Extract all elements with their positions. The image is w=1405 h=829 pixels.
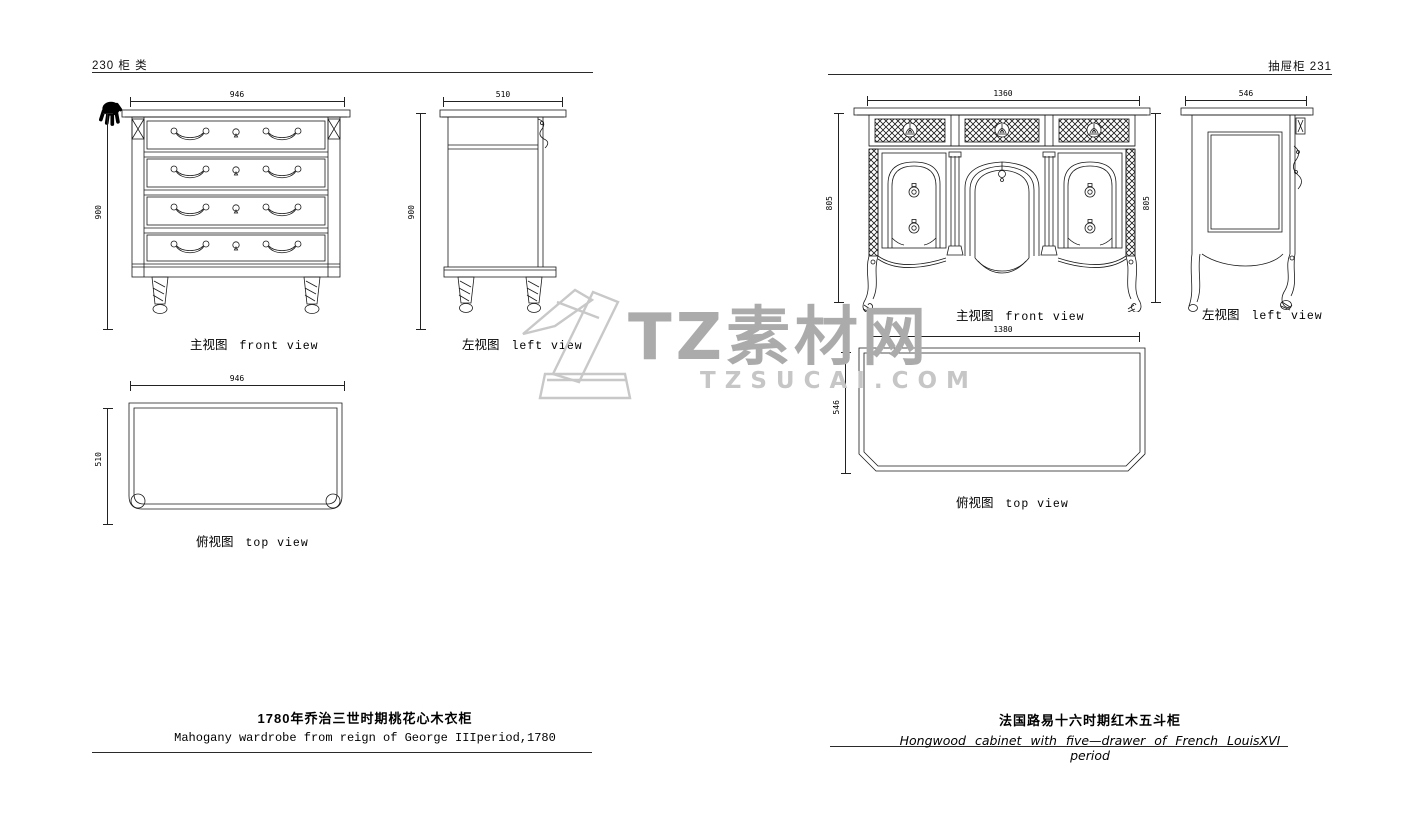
dim-value: 546: [832, 400, 841, 414]
footer-rule-left: [92, 752, 592, 753]
view-label-en: top view: [246, 537, 309, 550]
view-label-en: front view: [1006, 311, 1085, 324]
view-label-cn: 左视图: [462, 334, 500, 353]
right-caption: 法国路易十六时期红木五斗柜 Hongwood cabinet with five…: [880, 710, 1300, 763]
page-number-right: 抽屉柜 231: [1160, 58, 1332, 74]
dim-value: 510: [485, 90, 521, 99]
book-page-scan: 230 柜 类 抽屉柜 231 946 900: [0, 0, 1405, 829]
dim-value: 510: [94, 452, 103, 466]
dim-value: 900: [94, 205, 103, 219]
dim-line: [1155, 113, 1156, 303]
dim-line: [130, 101, 345, 102]
cabinet-front-view-drawing: [853, 106, 1151, 312]
view-label-en: front view: [240, 340, 319, 353]
dim-line: [443, 101, 563, 102]
dim-value: 946: [222, 374, 252, 383]
dim-line: [867, 100, 1140, 101]
dim-value: 546: [1228, 89, 1264, 98]
chest-front-view-label: 主视图 front view: [190, 334, 319, 353]
header-rule-right: [828, 74, 1332, 75]
dim-line: [1185, 100, 1307, 101]
dim-line: [838, 113, 839, 303]
chest-top-view-drawing: [123, 398, 348, 528]
view-label-cn: 左视图: [1202, 304, 1240, 323]
dim-value: 946: [222, 90, 252, 99]
dim-line: [107, 113, 108, 330]
cabinet-top-view-label: 俯视图 top view: [956, 492, 1069, 511]
caption-chinese: 1780年乔治三世时期桃花心木衣柜: [170, 708, 560, 727]
watermark-site-text: TZSUCAI.COM: [700, 368, 978, 394]
left-caption: 1780年乔治三世时期桃花心木衣柜 Mahogany wardrobe from…: [170, 708, 560, 745]
dim-line: [130, 385, 345, 386]
header-rule-left: [92, 72, 593, 73]
watermark-brand-text: TZ素材网: [628, 286, 930, 378]
dim-line: [420, 113, 421, 330]
view-label-cn: 俯视图: [956, 492, 994, 511]
view-label-en: top view: [1006, 498, 1069, 511]
view-label-cn: 俯视图: [196, 531, 234, 550]
dim-value: 1380: [985, 325, 1021, 334]
caption-english: Hongwood cabinet with five—drawer of Fre…: [880, 733, 1300, 763]
dim-line: [107, 408, 108, 525]
caption-chinese: 法国路易十六时期红木五斗柜: [880, 710, 1300, 729]
chest-front-view-drawing: [120, 105, 352, 333]
view-label-en: left view: [1252, 310, 1323, 323]
dim-value: 805: [825, 196, 834, 210]
cabinet-side-view-drawing: [1180, 106, 1315, 312]
page-number-left: 230 柜 类: [92, 57, 148, 73]
caption-english: Mahogany wardrobe from reign of George I…: [170, 731, 560, 745]
dim-value: 1360: [985, 89, 1021, 98]
view-label-cn: 主视图: [956, 305, 994, 324]
cabinet-front-view-label: 主视图 front view: [956, 305, 1085, 324]
dim-value: 900: [407, 205, 416, 219]
chest-top-view-label: 俯视图 top view: [196, 531, 309, 550]
cabinet-side-view-label: 左视图 left view: [1202, 304, 1323, 323]
view-label-cn: 主视图: [190, 334, 228, 353]
